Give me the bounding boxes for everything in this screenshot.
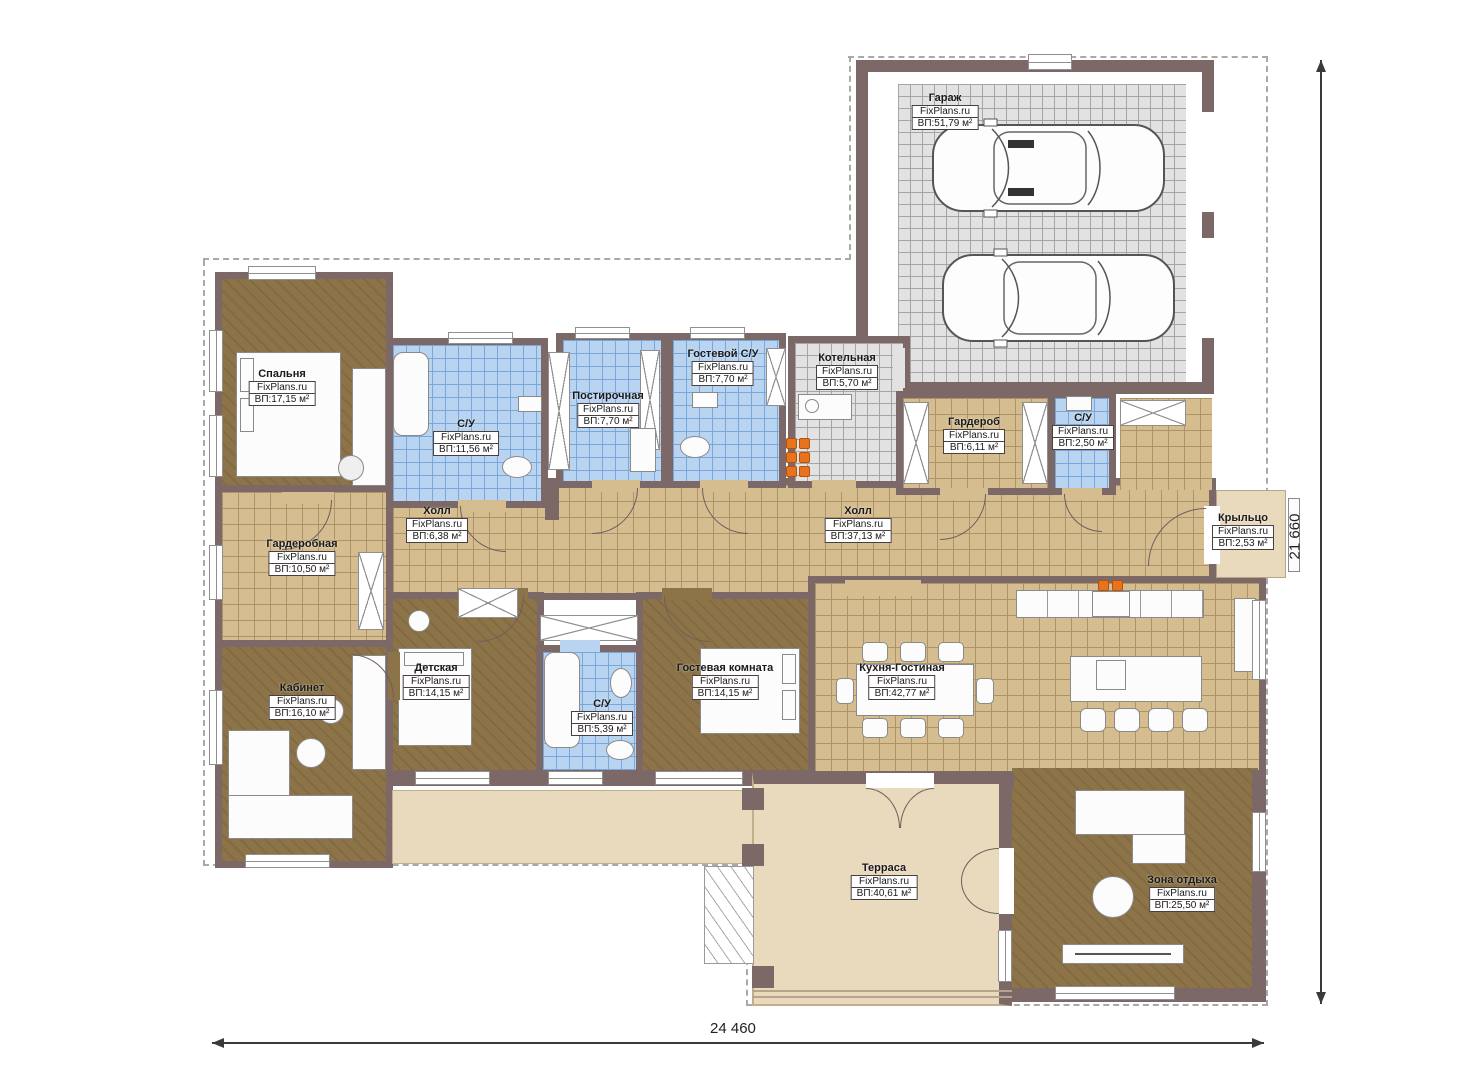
brand-watermark: FixPlans.ru	[913, 106, 978, 118]
room-name: Детская	[403, 662, 470, 674]
brand-watermark: FixPlans.ru	[1150, 888, 1215, 900]
room-area: ВП:16,10 м²	[270, 708, 335, 719]
stool	[338, 455, 364, 481]
room-name: Спальня	[249, 368, 316, 380]
room-name: Котельная	[816, 352, 878, 364]
wall-right	[1252, 770, 1266, 1002]
radiator	[786, 466, 797, 477]
room-name: Холл	[406, 505, 468, 517]
wardrobe-cabinet	[548, 352, 570, 470]
toilet	[680, 436, 710, 458]
window	[1252, 600, 1266, 680]
wardrobe-cabinet	[358, 552, 384, 630]
room-name: Гостевая комната	[677, 662, 773, 674]
room-area: ВП:51,79 м²	[913, 118, 978, 129]
room-area: ВП:17,15 м²	[250, 394, 315, 405]
window	[209, 690, 223, 765]
room-label-laundry: Постирочная FixPlans.ru ВП:7,70 м²	[572, 390, 643, 429]
room-label-office: Кабинет FixPlans.ru ВП:16,10 м²	[269, 682, 336, 721]
dimension-text-right: 21 660	[1286, 514, 1303, 560]
toilet	[502, 456, 532, 478]
radiator	[799, 452, 810, 463]
room-area: ВП:40,61 м²	[852, 888, 917, 899]
dimension-arrow	[1316, 60, 1326, 72]
bar-stool	[1148, 708, 1174, 732]
garage-door-opening	[1200, 238, 1216, 338]
sofa	[228, 795, 353, 839]
room-name: Крыльцо	[1212, 512, 1274, 524]
room-name: С/У	[1052, 412, 1114, 424]
room-area: ВП:7,70 м²	[578, 416, 638, 427]
window	[248, 266, 316, 280]
terrace-step	[752, 996, 1012, 998]
room-label-hall-small: Холл FixPlans.ru ВП:6,38 м²	[406, 505, 468, 544]
brand-watermark: FixPlans.ru	[944, 430, 1004, 442]
dimension-line-bottom	[212, 1042, 1264, 1044]
pillow	[782, 654, 796, 684]
room-label-bathroom-2: С/У FixPlans.ru ВП:5,39 м²	[571, 698, 633, 737]
room-label-guest-wc: Гостевой С/У FixPlans.ru ВП:7,70 м²	[688, 348, 759, 387]
room-name: Кухня-Гостиная	[859, 662, 945, 674]
dimension-arrow	[1252, 1038, 1264, 1048]
boundary-line	[849, 56, 851, 260]
bar-stool	[1182, 708, 1208, 732]
brand-watermark: FixPlans.ru	[693, 362, 753, 374]
pillar	[752, 966, 774, 988]
bathtub	[393, 352, 429, 436]
dining-chair	[836, 678, 854, 704]
door-opening	[893, 348, 905, 388]
terrace-step	[752, 990, 1012, 992]
window	[1055, 986, 1175, 1000]
window	[448, 332, 513, 344]
window	[575, 327, 630, 339]
kitchen-island	[1070, 656, 1202, 702]
window	[245, 854, 330, 868]
room-label-bathroom-main: С/У FixPlans.ru ВП:11,56 м²	[433, 418, 499, 457]
sofa	[1075, 790, 1185, 835]
dimension-text-bottom: 24 460	[710, 1020, 756, 1037]
brand-watermark: FixPlans.ru	[870, 676, 935, 688]
island-sink	[1096, 660, 1126, 690]
room-area: ВП:6,11 м²	[944, 442, 1004, 453]
brand-watermark: FixPlans.ru	[578, 404, 638, 416]
room-name: С/У	[571, 698, 633, 710]
brand-watermark: FixPlans.ru	[693, 676, 758, 688]
wardrobe-cabinet	[1120, 400, 1186, 426]
sink	[518, 396, 542, 412]
room-name: Гардероб	[943, 416, 1005, 428]
room-name: С/У	[433, 418, 499, 430]
window	[548, 771, 603, 785]
dining-chair	[862, 718, 888, 738]
room-area: ВП:14,15 м²	[404, 688, 469, 699]
room-label-dressing: Гардеробная FixPlans.ru ВП:10,50 м²	[266, 538, 337, 577]
radiator	[799, 466, 810, 477]
dining-chair	[900, 718, 926, 738]
wardrobe-cabinet	[903, 402, 929, 484]
radiator	[786, 438, 797, 449]
wardrobe-cabinet	[1022, 402, 1048, 484]
room-area: ВП:5,70 м²	[817, 378, 877, 389]
sofa-chaise	[1132, 834, 1186, 864]
coffee-table	[296, 738, 326, 768]
chair	[408, 610, 430, 632]
room-name: Холл	[825, 505, 892, 517]
pillow	[782, 690, 796, 720]
room-label-wc-small: С/У FixPlans.ru ВП:2,50 м²	[1052, 412, 1114, 451]
window	[998, 930, 1012, 982]
wardrobe-cabinet	[458, 588, 518, 618]
terrace-ramp	[704, 866, 754, 964]
burner	[1098, 580, 1109, 591]
room-label-boiler: Котельная FixPlans.ru ВП:5,70 м²	[816, 352, 878, 391]
window	[209, 545, 223, 600]
bar-stool	[1080, 708, 1106, 732]
garage-window	[1028, 54, 1072, 70]
room-label-hall-big: Холл FixPlans.ru ВП:37,13 м²	[825, 505, 892, 544]
radiator	[786, 452, 797, 463]
room-label-kids: Детская FixPlans.ru ВП:14,15 м²	[403, 662, 470, 701]
brand-watermark: FixPlans.ru	[270, 696, 335, 708]
dining-chair	[900, 642, 926, 662]
sink	[610, 668, 632, 698]
room-area: ВП:2,53 м²	[1213, 538, 1273, 549]
dining-chair	[938, 642, 964, 662]
room-label-kitchen-living: Кухня-Гостиная FixPlans.ru ВП:42,77 м²	[859, 662, 945, 701]
lounge-door-opening	[999, 848, 1014, 914]
dimension-arrow	[212, 1038, 224, 1048]
brand-watermark: FixPlans.ru	[826, 519, 891, 531]
washing-machine	[630, 428, 656, 472]
radiator	[799, 438, 810, 449]
window	[209, 330, 223, 392]
room-area: ВП:10,50 м²	[270, 564, 335, 575]
dining-chair	[862, 642, 888, 662]
room-name: Постирочная	[572, 390, 643, 402]
room-label-wardrobe: Гардероб FixPlans.ru ВП:6,11 м²	[943, 416, 1005, 455]
room-label-guest: Гостевая комната FixPlans.ru ВП:14,15 м²	[677, 662, 773, 701]
brand-watermark: FixPlans.ru	[404, 676, 469, 688]
garage-door-opening	[1200, 112, 1216, 212]
kitchen-opening	[845, 580, 921, 596]
brand-watermark: FixPlans.ru	[1053, 426, 1113, 438]
brand-watermark: FixPlans.ru	[250, 382, 315, 394]
window	[415, 771, 490, 785]
brand-watermark: FixPlans.ru	[1213, 526, 1273, 538]
door-opening	[560, 640, 600, 652]
wardrobe-cabinet	[766, 348, 786, 406]
boundary-line	[203, 260, 205, 866]
bar-stool	[1114, 708, 1140, 732]
boundary-line	[203, 258, 851, 260]
room-label-terrace: Терраса FixPlans.ru ВП:40,61 м²	[851, 862, 918, 901]
sink	[692, 392, 718, 408]
dimension-line-right	[1320, 60, 1322, 1004]
wardrobe-cabinet	[540, 615, 638, 641]
dining-chair	[938, 718, 964, 738]
window	[209, 415, 223, 477]
door-opening	[812, 480, 856, 492]
terrace-door-opening	[866, 773, 934, 788]
room-area: ВП:5,39 м²	[572, 724, 632, 735]
brand-watermark: FixPlans.ru	[434, 432, 498, 444]
room-label-bedroom: Спальня FixPlans.ru ВП:17,15 м²	[249, 368, 316, 407]
brand-watermark: FixPlans.ru	[407, 519, 467, 531]
pillar	[742, 844, 764, 866]
window	[655, 771, 743, 785]
room-area: ВП:37,13 м²	[826, 531, 891, 542]
walkway	[392, 790, 754, 864]
window	[690, 327, 745, 339]
coffee-table	[1092, 876, 1134, 918]
car-top-view	[940, 248, 1178, 348]
stove	[1092, 591, 1130, 617]
pillar	[742, 788, 764, 810]
brand-watermark: FixPlans.ru	[852, 876, 917, 888]
room-name: Гостевой С/У	[688, 348, 759, 360]
toilet	[606, 740, 634, 760]
car-top-view	[930, 118, 1168, 218]
brand-watermark: FixPlans.ru	[572, 712, 632, 724]
room-name: Гараж	[912, 92, 979, 104]
room-name: Гардеробная	[266, 538, 337, 550]
room-label-garage: Гараж FixPlans.ru ВП:51,79 м²	[912, 92, 979, 131]
boiler-dial	[805, 399, 819, 413]
room-label-lounge: Зона отдыха FixPlans.ru ВП:25,50 м²	[1147, 874, 1217, 913]
room-name: Терраса	[851, 862, 918, 874]
room-name: Зона отдыха	[1147, 874, 1217, 886]
floor-plan-canvas: Спальня FixPlans.ru ВП:17,15 м² С/У FixP…	[0, 0, 1474, 1080]
dimension-arrow	[1316, 992, 1326, 1004]
brand-watermark: FixPlans.ru	[817, 366, 877, 378]
room-area: ВП:25,50 м²	[1150, 900, 1215, 911]
room-name: Кабинет	[269, 682, 336, 694]
dining-chair	[976, 678, 994, 704]
burner	[1112, 580, 1123, 591]
window	[1252, 812, 1266, 872]
room-area: ВП:6,38 м²	[407, 531, 467, 542]
tv-stand	[1062, 944, 1184, 964]
room-area: ВП:7,70 м²	[693, 374, 753, 385]
sink	[1066, 396, 1092, 411]
room-area: ВП:2,50 м²	[1053, 438, 1113, 449]
room-area: ВП:14,15 м²	[693, 688, 758, 699]
room-label-porch: Крыльцо FixPlans.ru ВП:2,53 м²	[1212, 512, 1274, 551]
room-area: ВП:42,77 м²	[870, 688, 935, 699]
room-area: ВП:11,56 м²	[434, 444, 498, 455]
brand-watermark: FixPlans.ru	[270, 552, 335, 564]
